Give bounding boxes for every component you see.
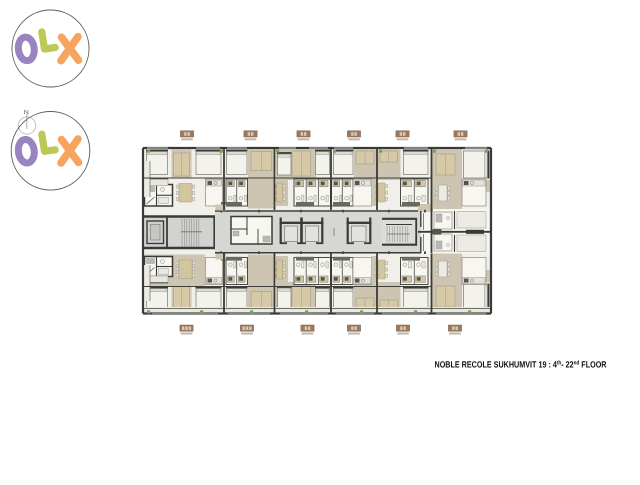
svg-text:NOBLE RECOLE SUKHUMVIT 19 : 4t: NOBLE RECOLE SUKHUMVIT 19 : 4th- 22nd FL… [435,359,607,369]
